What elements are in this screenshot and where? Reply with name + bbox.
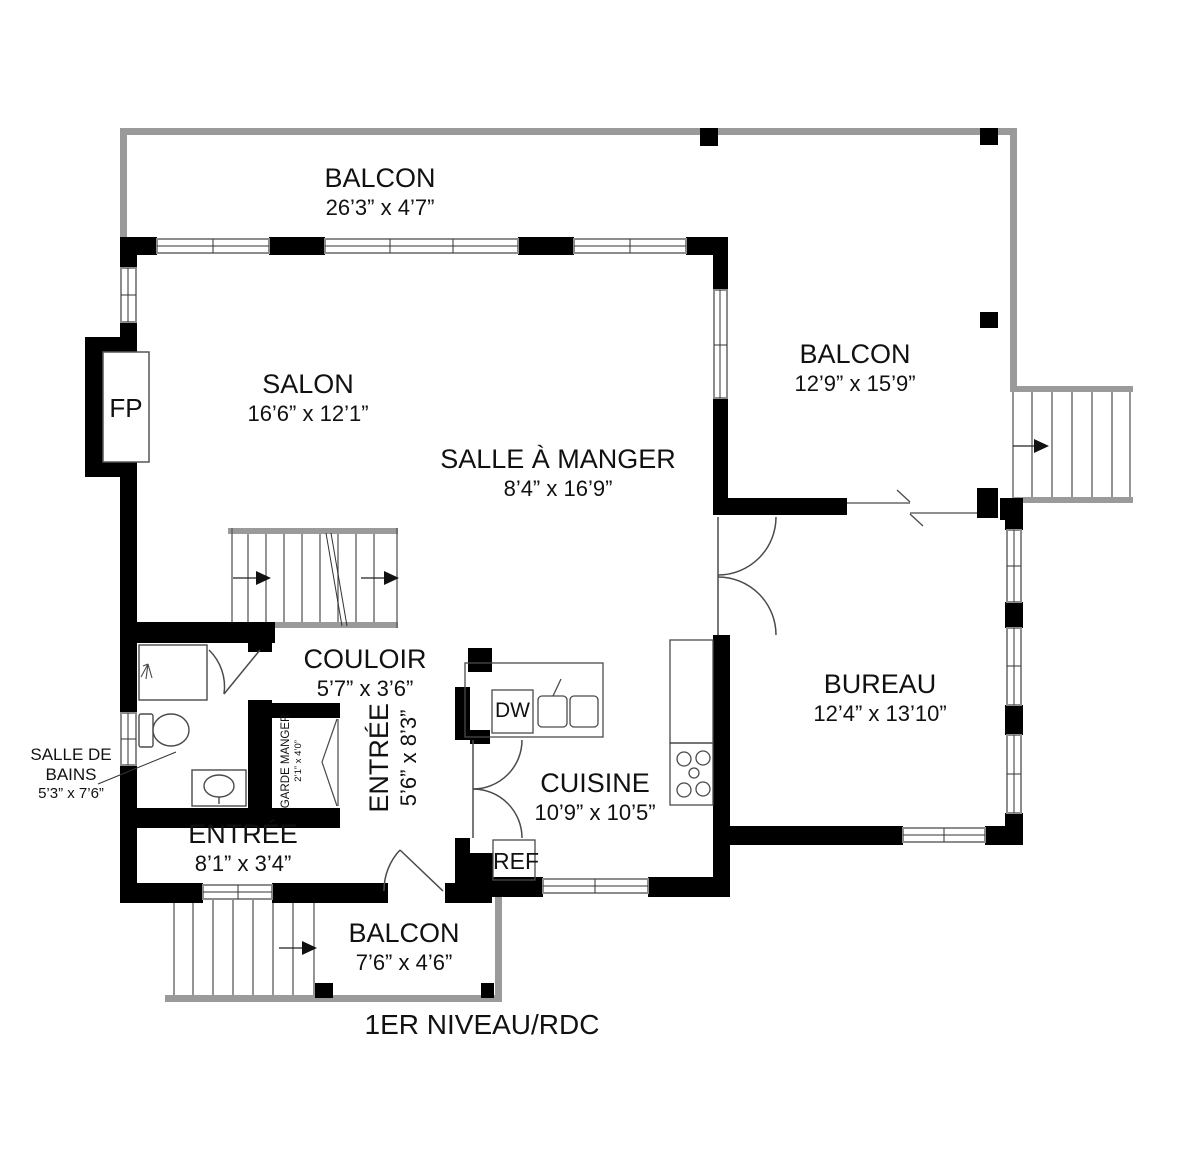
room-dims: 5’6” x 8’3” [396,668,422,848]
interior-stairs [228,528,399,628]
room-name: CUISINE [475,768,715,800]
room-dims: 7’6” x 4’6” [284,950,524,976]
front-door [384,850,443,891]
kitchen-fixtures [465,640,713,880]
fireplace-label: FP [103,393,149,424]
room-label-balcon-top: BALCON 26’3” x 4’7” [260,163,500,221]
room-dims: 12’9” x 15’9” [735,371,975,397]
room-label-balcon-right: BALCON 12’9” x 15’9” [735,339,975,397]
bifold-door-garde-manger [322,719,338,806]
dishwasher-label: DW [492,699,533,723]
sink-icon [192,770,246,806]
room-dims: 10’9” x 10’5” [475,800,715,826]
bathroom-fixtures [139,645,246,806]
stair-break-line [326,533,347,626]
room-name: SALON [188,369,428,401]
room-label-salle-a-manger: SALLE À MANGER 8’4” x 16’9” [438,444,678,502]
room-label-bureau: BUREAU 12’4” x 13’10” [760,669,1000,727]
room-dims: 8’4” x 16’9” [438,476,678,502]
floor-title-text: 1ER NIVEAU/RDC [362,1008,602,1041]
room-name: BALCON [735,339,975,371]
room-label-cuisine: CUISINE 10’9” x 10’5” [475,768,715,826]
right-stairs [1013,392,1130,497]
floor-plan: BALCON 26’3” x 4’7” SALON 16’6” x 12’1” … [0,0,1185,1166]
room-label-entree-room: ENTRÉE 8’1” x 3’4” [123,819,363,877]
room-dims: 8’1” x 3’4” [123,851,363,877]
shower-icon [139,645,207,700]
room-label-salle-de-bains: SALLE DE BAINS 5’3” x 7’6” [15,745,127,803]
sliding-door-balcony [847,490,977,526]
room-label-salon: SALON 16’6” x 12’1” [188,369,428,427]
room-label-entree-hall: ENTRÉE 5’6” x 8’3” [364,668,422,848]
room-name: BALCON [260,163,500,195]
room-name: SALLE À MANGER [438,444,678,476]
room-dims: 26’3” x 4’7” [260,195,500,221]
room-dims: 2’1” x 4’0” [293,711,304,811]
kitchen-counter-right [670,640,713,743]
room-name: GARDE MANGER [280,711,293,811]
room-name: ENTRÉE [364,668,396,848]
floor-plan-drawing [0,0,1185,1166]
room-dims: 16’6” x 12’1” [188,401,428,427]
kitchen-sink-icon [538,679,598,727]
floor-title: 1ER NIVEAU/RDC [362,1008,602,1041]
refrigerator-label: REF [493,848,535,875]
room-name: ENTRÉE [123,819,363,851]
room-name: BALCON [284,918,524,950]
room-dims: 12’4” x 13’10” [760,701,1000,727]
room-label-garde-manger: GARDE MANGER 2’1” x 4’0” [280,711,304,811]
room-name: BUREAU [760,669,1000,701]
french-doors-bureau [718,517,776,635]
room-label-balcon-bottom: BALCON 7’6” x 4’6” [284,918,524,976]
kitchen-counter [465,663,603,737]
room-name: SALLE DE BAINS [15,745,127,784]
stair-direction-arrow [1013,439,1049,453]
room-dims: 5’3” x 7’6” [15,785,127,803]
toilet-icon [139,714,189,747]
